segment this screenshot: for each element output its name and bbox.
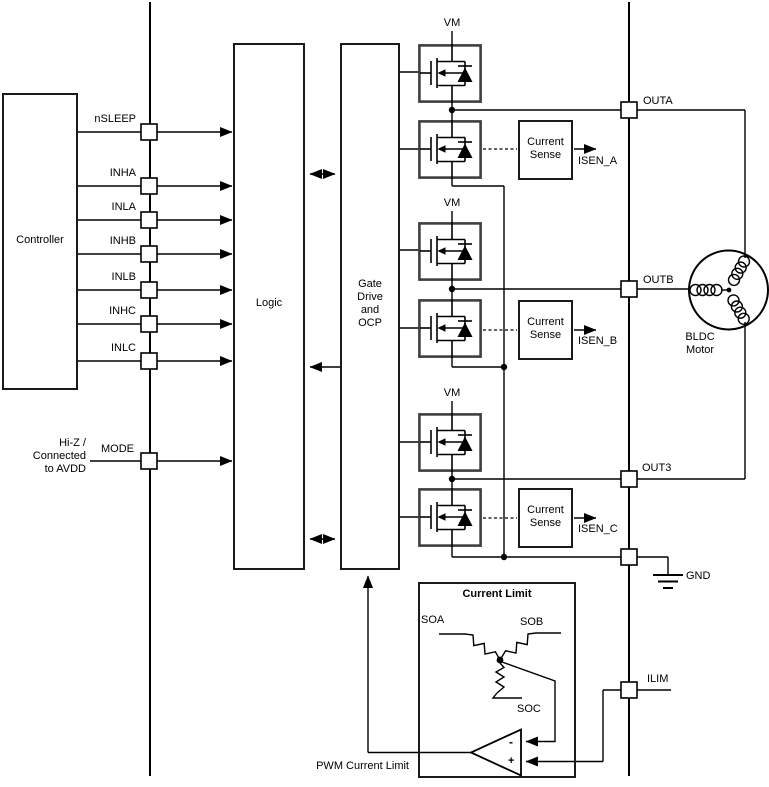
mode-note: Hi-Z / Connected to AVDD: [33, 437, 86, 476]
motor-line2: Motor: [670, 344, 730, 357]
vm-label-c: VM: [432, 387, 472, 400]
controller-label: Controller: [2, 234, 78, 247]
soc-label: SOC: [517, 703, 541, 716]
fet-b-high: [419, 222, 480, 281]
vm-label-a: VM: [432, 17, 472, 30]
pin-label-inlc: INLC: [111, 342, 136, 355]
current-limit-title: Current Limit: [418, 588, 576, 601]
gate-drive-line3: and: [340, 304, 400, 317]
current-sense-line2: Sense: [518, 149, 573, 162]
pin-label-inhb: INHB: [110, 235, 136, 248]
pin-ilim: [621, 682, 637, 698]
pin-label-nsleep: nSLEEP: [94, 113, 136, 126]
current-sense-line1: Current: [518, 136, 573, 149]
pin-out3: [621, 471, 637, 487]
isen-b-label: ISEN_B: [578, 335, 617, 348]
fet-a-low: [419, 120, 480, 179]
bldc-motor-symbol: [689, 251, 768, 330]
current-sense-line2: Sense: [518, 329, 573, 342]
pin-label-mode: MODE: [101, 443, 134, 456]
fet-c-high: [419, 413, 480, 472]
motor-wires: [637, 110, 745, 479]
fet-a-high: [419, 44, 480, 103]
vm-label-b: VM: [432, 197, 472, 210]
pin-label-ilim: ILIM: [647, 673, 668, 686]
logic-label: Logic: [233, 297, 305, 310]
pin-inhc: [141, 316, 157, 332]
pin-label-inhc: INHC: [109, 305, 136, 318]
pin-label-inha: INHA: [110, 167, 136, 180]
mode-note-line2: Connected: [33, 450, 86, 463]
pin-gnd: [621, 549, 637, 565]
pin-inlb: [141, 282, 157, 298]
gate-drive-line4: OCP: [340, 317, 400, 330]
mode-note-line1: Hi-Z /: [33, 437, 86, 450]
pin-label-inla: INLA: [112, 201, 136, 214]
bldc-motor-label: BLDC Motor: [670, 331, 730, 357]
pin-label-inlb: INLB: [112, 271, 136, 284]
pin-label-out3: OUT3: [642, 462, 671, 475]
junction-dots: [449, 107, 507, 664]
gate-stubs: [400, 72, 419, 517]
isen-a-label: ISEN_A: [578, 155, 617, 168]
current-sense-line1: Current: [518, 316, 573, 329]
gate-drive-line2: Drive: [340, 291, 400, 304]
pin-outb: [621, 281, 637, 297]
current-sense-c-label: Current Sense: [518, 504, 573, 530]
pin-inhb: [141, 246, 157, 262]
isen-c-label: ISEN_C: [578, 523, 618, 536]
pin-label-gnd: GND: [686, 570, 710, 583]
pin-outa: [621, 102, 637, 118]
pin-mode: [141, 453, 157, 469]
input-arrows: [157, 132, 232, 461]
current-sense-line1: Current: [518, 504, 573, 517]
pin-inla: [141, 212, 157, 228]
pwm-current-limit-label: PWM Current Limit: [316, 760, 409, 773]
sense-links: [483, 149, 517, 518]
pin-label-outa: OUTA: [643, 95, 673, 108]
block-diagram: - + Controller Logic Gate Drive and OCP …: [0, 0, 769, 787]
current-sense-b-label: Current Sense: [518, 316, 573, 342]
current-limit-box: [418, 582, 576, 778]
fet-c-low: [419, 488, 480, 547]
soa-label: SOA: [421, 614, 444, 627]
current-sense-a-label: Current Sense: [518, 136, 573, 162]
isen-arrows: [574, 149, 596, 518]
mode-note-line3: to AVDD: [33, 463, 86, 476]
sob-label: SOB: [520, 616, 543, 629]
pin-label-outb: OUTB: [643, 274, 674, 287]
fet-b-low: [419, 299, 480, 358]
motor-line1: BLDC: [670, 331, 730, 344]
logic-gatedrive-arrows: [310, 174, 340, 539]
pin-nsleep: [141, 124, 157, 140]
pin-inlc: [141, 353, 157, 369]
gate-drive-line1: Gate: [340, 278, 400, 291]
pin-inha: [141, 178, 157, 194]
ground-symbol: [637, 557, 683, 588]
controller-pin-wires: [78, 132, 141, 461]
gate-drive-label: Gate Drive and OCP: [340, 278, 400, 330]
current-sense-line2: Sense: [518, 517, 573, 530]
